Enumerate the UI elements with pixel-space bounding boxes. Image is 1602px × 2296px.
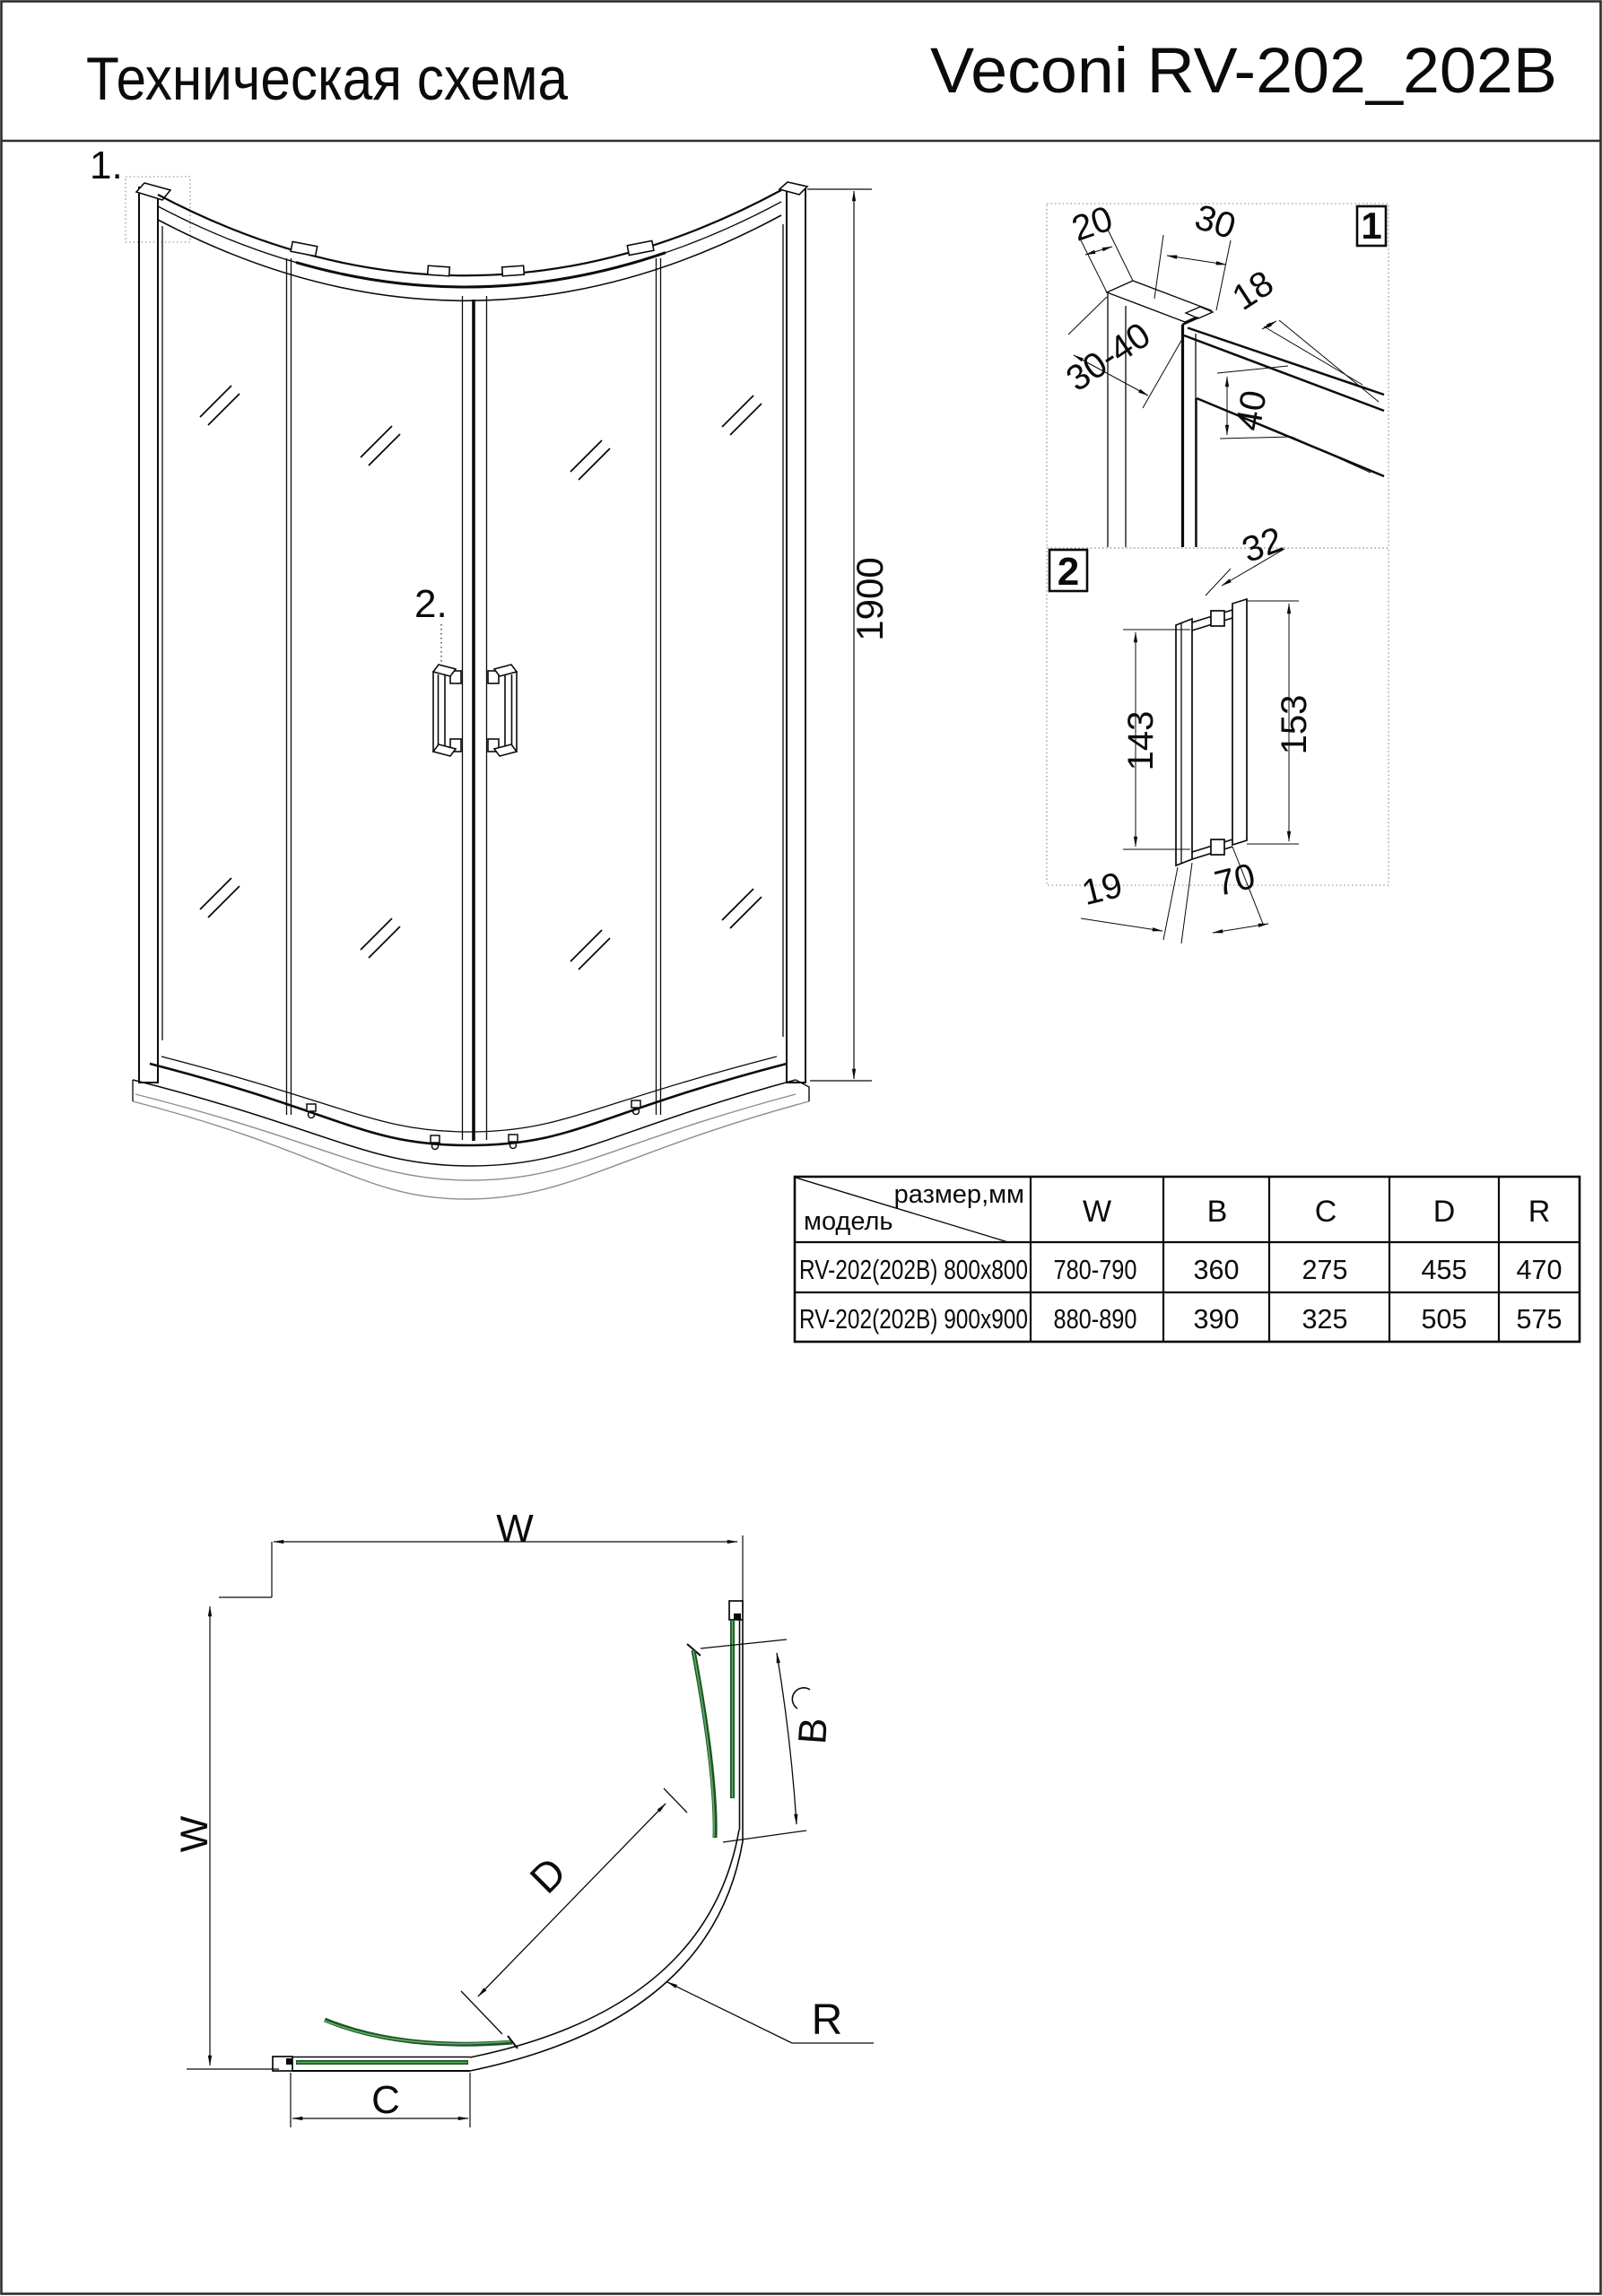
svg-text:18: 18 bbox=[1225, 264, 1280, 318]
svg-text:Veconi RV-202_202B: Veconi RV-202_202B bbox=[930, 36, 1557, 107]
svg-text:2.: 2. bbox=[414, 582, 448, 626]
svg-text:32: 32 bbox=[1237, 520, 1288, 571]
svg-text:390: 390 bbox=[1194, 1303, 1240, 1335]
svg-text:455: 455 bbox=[1422, 1254, 1467, 1285]
svg-text:R: R bbox=[812, 1996, 843, 2044]
svg-text:143: 143 bbox=[1121, 711, 1161, 771]
svg-text:модель: модель bbox=[804, 1207, 893, 1236]
svg-text:1900: 1900 bbox=[849, 557, 891, 640]
svg-text:153: 153 bbox=[1275, 695, 1314, 755]
svg-text:D: D bbox=[1433, 1195, 1456, 1229]
svg-text:B: B bbox=[1207, 1195, 1228, 1229]
svg-text:2: 2 bbox=[1058, 550, 1079, 594]
svg-text:360: 360 bbox=[1194, 1254, 1240, 1285]
svg-text:C: C bbox=[371, 2078, 400, 2122]
svg-text:325: 325 bbox=[1302, 1303, 1348, 1335]
svg-text:275: 275 bbox=[1302, 1254, 1348, 1285]
svg-text:780-790: 780-790 bbox=[1054, 1254, 1137, 1285]
svg-text:W: W bbox=[496, 1507, 534, 1551]
svg-text:1: 1 bbox=[1361, 204, 1381, 247]
svg-text:505: 505 bbox=[1422, 1303, 1467, 1335]
svg-text:W: W bbox=[173, 1815, 216, 1852]
svg-text:30: 30 bbox=[1190, 197, 1240, 247]
svg-text:C: C bbox=[1315, 1195, 1337, 1229]
svg-text:R: R bbox=[1528, 1195, 1551, 1229]
svg-text:B: B bbox=[790, 1717, 836, 1746]
svg-text:RV-202(202B) 800x800: RV-202(202B) 800x800 bbox=[799, 1254, 1028, 1285]
svg-text:RV-202(202B) 900x900: RV-202(202B) 900x900 bbox=[799, 1303, 1028, 1335]
svg-text:20: 20 bbox=[1067, 199, 1118, 249]
svg-text:880-890: 880-890 bbox=[1054, 1303, 1137, 1335]
svg-text:1.: 1. bbox=[90, 143, 123, 187]
svg-text:30-40: 30-40 bbox=[1059, 315, 1157, 399]
svg-text:40: 40 bbox=[1229, 387, 1275, 433]
svg-text:Техническая схема: Техническая схема bbox=[86, 45, 568, 113]
svg-text:D: D bbox=[521, 1848, 575, 1902]
svg-text:470: 470 bbox=[1517, 1254, 1563, 1285]
svg-text:19: 19 bbox=[1078, 865, 1127, 913]
svg-text:размер,мм: размер,мм bbox=[894, 1180, 1024, 1209]
svg-text:575: 575 bbox=[1517, 1303, 1563, 1335]
svg-text:W: W bbox=[1083, 1195, 1111, 1229]
